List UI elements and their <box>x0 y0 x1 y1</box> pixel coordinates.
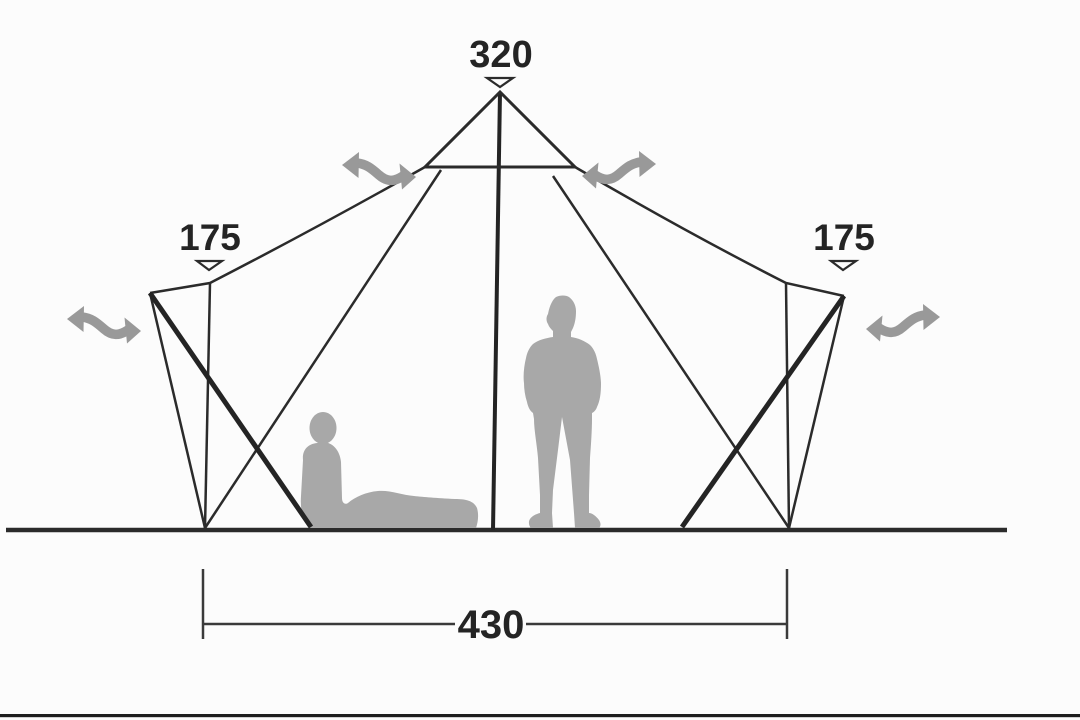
svg-text:175: 175 <box>813 217 875 258</box>
svg-text:320: 320 <box>469 34 532 76</box>
svg-text:175: 175 <box>179 217 241 258</box>
svg-text:430: 430 <box>458 603 525 647</box>
